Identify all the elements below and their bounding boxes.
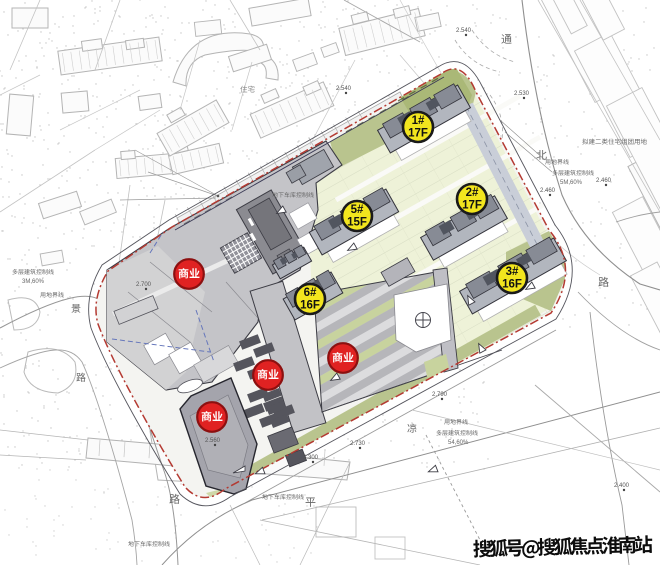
svg-text:17F: 17F [408,128,428,140]
svg-text:17F: 17F [462,200,482,212]
svg-text:16F: 16F [502,279,522,291]
svg-text:2#: 2# [466,187,479,199]
svg-text:2.540: 2.540 [336,86,352,92]
svg-text:3#: 3# [506,266,519,278]
svg-text:5#: 5# [351,204,364,216]
svg-text:2.540: 2.540 [456,28,472,34]
svg-text:54,60%: 54,60% [448,440,469,446]
svg-text:16F: 16F [300,300,320,312]
svg-text:2.530: 2.530 [514,91,530,97]
svg-text:5M,60%: 5M,60% [560,180,583,186]
svg-text:2.730: 2.730 [350,441,366,447]
svg-text:1#: 1# [412,115,425,127]
svg-text:15F: 15F [347,217,367,229]
svg-text:2.560: 2.560 [205,438,221,444]
svg-text:6#: 6# [304,287,317,299]
svg-text:3M,60%: 3M,60% [22,279,45,285]
svg-text:2.400: 2.400 [614,483,630,489]
svg-text:2.460: 2.460 [596,178,612,184]
svg-text:2.700: 2.700 [136,282,152,288]
svg-text:2.300: 2.300 [303,455,319,461]
svg-text:2.460: 2.460 [540,188,556,194]
svg-text:2.790: 2.790 [432,392,448,398]
